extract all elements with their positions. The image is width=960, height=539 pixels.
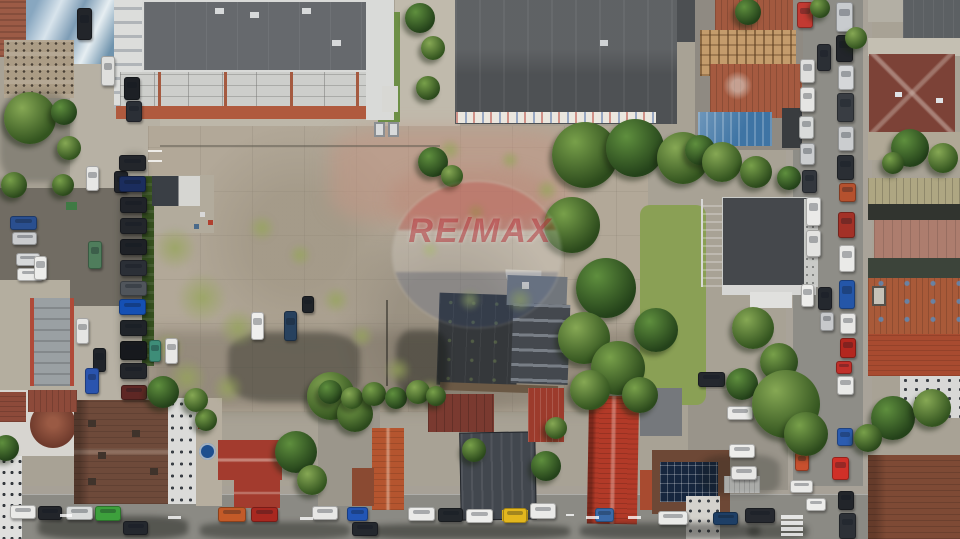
parked-car (698, 372, 725, 387)
maroon-roof-house (869, 54, 955, 132)
parked-car (713, 512, 738, 525)
tree (297, 465, 327, 495)
road-marking (148, 160, 162, 162)
tree (544, 197, 600, 253)
tree (421, 36, 445, 60)
grass-patch (384, 356, 412, 384)
blue-trampoline (199, 443, 216, 460)
sw-red-roof (0, 392, 26, 422)
terrace-divider (290, 72, 293, 108)
grass-patch (248, 214, 276, 242)
debris-dot (208, 220, 213, 225)
parked-car (124, 77, 140, 100)
apartment-red-trim (116, 106, 394, 119)
terrace-divider (356, 72, 359, 108)
parked-car (120, 363, 147, 379)
rosy-roof (874, 220, 960, 258)
parked-car (165, 338, 178, 364)
tree (845, 27, 867, 49)
road-marking (566, 514, 574, 516)
parked-car (347, 507, 368, 521)
parked-car (284, 311, 297, 341)
parked-car (530, 503, 556, 519)
grass-patch (458, 288, 482, 312)
parked-car (120, 320, 147, 336)
grass-patch (288, 243, 312, 267)
tree (318, 380, 342, 404)
road-marking (148, 150, 162, 152)
parked-car (817, 44, 831, 71)
parked-car (820, 312, 834, 331)
rooftop-ac-unit (250, 12, 259, 18)
office-canopy (750, 292, 792, 308)
parked-car (800, 59, 815, 83)
parked-car (76, 318, 89, 344)
parked-car (729, 444, 755, 458)
parked-car (837, 155, 854, 180)
tree (195, 409, 217, 431)
parked-car (120, 341, 147, 360)
green-dumpster (66, 202, 77, 210)
dormer (98, 452, 106, 459)
ac-fan-unit (388, 122, 399, 137)
parked-car (86, 166, 99, 191)
tree (531, 451, 561, 481)
tree (52, 174, 74, 196)
parked-car (85, 368, 99, 394)
grass-patch (322, 286, 350, 314)
terrace-divider (224, 72, 227, 108)
ne-dark-roof (903, 0, 960, 38)
garage-row (30, 298, 74, 386)
dormer (88, 420, 96, 427)
debris-dot (194, 224, 199, 229)
warehouse-roof (455, 0, 677, 124)
parked-car (806, 197, 821, 226)
parked-car (12, 232, 37, 245)
parked-car (438, 508, 463, 522)
road-marking (781, 515, 803, 519)
parked-car (838, 126, 854, 151)
tin-roof (868, 178, 960, 204)
tree (882, 152, 904, 174)
tree (385, 387, 407, 409)
parked-car (840, 338, 856, 358)
shade-band (868, 204, 960, 220)
parked-car (120, 260, 147, 276)
parked-car (352, 522, 378, 536)
parked-car (120, 281, 147, 296)
tree (570, 370, 610, 410)
grass-patch (506, 286, 534, 314)
parked-car (503, 508, 527, 523)
roof-vent (600, 40, 608, 46)
red-hip-roof (218, 440, 282, 480)
parked-car (595, 508, 614, 522)
parked-car (658, 511, 688, 525)
tree (147, 376, 179, 408)
parked-car (120, 218, 147, 234)
bright-tile-roofs (868, 334, 960, 376)
parked-car (466, 509, 493, 523)
tree (735, 0, 761, 25)
parked-car (101, 56, 115, 86)
grass-patch (535, 178, 559, 202)
tree (854, 424, 882, 452)
tree (416, 76, 440, 100)
grass-patch (466, 202, 486, 222)
grass-patch (153, 226, 197, 270)
parked-car (837, 428, 853, 446)
office-roof (722, 197, 816, 287)
parked-car (839, 183, 856, 202)
parked-car (839, 245, 855, 272)
parked-car (802, 170, 817, 193)
parked-car (840, 313, 856, 334)
grass-patch (350, 324, 374, 348)
parked-car (800, 143, 815, 165)
tree (341, 387, 363, 409)
orange-shed (352, 468, 374, 506)
parked-car (839, 280, 855, 309)
road-marking (586, 516, 599, 519)
road-marking (628, 516, 641, 519)
parked-car (120, 239, 147, 255)
skylight (895, 92, 902, 97)
apartment-roof (142, 0, 368, 72)
se-tile-roofs (868, 455, 960, 539)
parked-car (838, 491, 854, 510)
tree (362, 382, 386, 406)
ornate-chimney (872, 286, 886, 306)
parked-car (806, 498, 826, 511)
tree (51, 99, 77, 125)
tree (702, 142, 742, 182)
road-marking (300, 517, 313, 520)
parked-car (837, 93, 854, 122)
garage-red-roof (28, 390, 77, 412)
shed (152, 176, 200, 206)
turret-house-roof (74, 400, 170, 504)
parked-car (790, 480, 813, 493)
parked-car (38, 506, 62, 520)
dormer (88, 478, 96, 485)
tree (57, 136, 81, 160)
parked-car (727, 406, 753, 420)
tree (1, 172, 27, 198)
parked-car (120, 197, 147, 213)
grass-patch (212, 372, 244, 404)
warehouse-roof-ext (677, 0, 695, 42)
parked-car (800, 87, 815, 112)
cast-shadow (200, 522, 350, 539)
cast-shadow (360, 524, 570, 539)
grass-patch (420, 240, 440, 260)
road-marking (60, 514, 72, 517)
tree (184, 388, 208, 412)
parked-car (121, 385, 147, 400)
cast-shadow (580, 523, 760, 539)
parked-car (818, 287, 832, 310)
parked-car (119, 155, 146, 171)
parked-car (126, 101, 142, 122)
orange-long-building (372, 428, 404, 510)
parked-car (745, 508, 775, 523)
parked-car (838, 212, 855, 238)
red-hip-roof-2 (234, 478, 280, 508)
parked-car (832, 457, 849, 480)
debris-dot (200, 212, 205, 217)
parked-car (34, 256, 47, 280)
white-shed-grass (382, 86, 398, 112)
tree (777, 166, 801, 190)
tree (405, 3, 435, 33)
tree (928, 143, 958, 173)
rooftop-ac-unit (302, 8, 311, 14)
tree (784, 412, 828, 456)
parked-car (119, 176, 146, 192)
loft-building (4, 40, 74, 98)
red-tile-house (587, 396, 639, 525)
tree (462, 438, 486, 462)
parked-car (799, 116, 814, 139)
grass-patch (500, 150, 520, 170)
tree (576, 258, 636, 318)
tree (4, 92, 56, 144)
tree (732, 307, 774, 349)
tree (606, 119, 664, 177)
tree (740, 156, 772, 188)
tree (634, 308, 678, 352)
rooftop-ac-unit (215, 8, 224, 14)
parked-car (10, 505, 36, 519)
dormer (150, 468, 158, 475)
parked-car (251, 507, 278, 522)
lot-fence-line (160, 145, 440, 147)
lawn-east (640, 205, 706, 405)
rooftop-ac-unit (332, 40, 341, 46)
white-wing (168, 398, 196, 504)
parked-car (10, 216, 37, 230)
aerial-photo: RE/MAX (0, 0, 960, 539)
parked-car (836, 361, 852, 374)
tree (545, 417, 567, 439)
parked-car (801, 284, 814, 307)
parked-car (731, 466, 757, 480)
parked-car (123, 521, 148, 535)
road-marking (781, 527, 803, 531)
road-marking (781, 533, 803, 536)
parked-car (806, 230, 821, 257)
parked-car (218, 507, 246, 522)
parked-car (251, 312, 264, 340)
terrace-divider (158, 72, 161, 108)
parked-car (66, 506, 93, 520)
parked-car (88, 241, 102, 269)
parked-car (77, 8, 92, 40)
tree (426, 386, 446, 406)
tree (441, 165, 463, 187)
parked-car (119, 299, 146, 315)
green-band (868, 258, 960, 278)
dormer (132, 430, 140, 437)
parked-car (312, 506, 338, 520)
parked-car (838, 65, 854, 90)
road-marking (168, 516, 181, 519)
parked-car (302, 296, 314, 313)
skylight (936, 98, 943, 103)
tree (913, 389, 951, 427)
ac-fan-unit (374, 122, 385, 137)
parked-car (408, 507, 435, 521)
sw-white-tower (0, 456, 22, 539)
tree (622, 377, 658, 413)
road-marking (781, 521, 803, 525)
parked-car (837, 376, 854, 395)
parked-car (839, 513, 856, 539)
parked-car (149, 340, 161, 362)
parked-car (95, 506, 121, 521)
